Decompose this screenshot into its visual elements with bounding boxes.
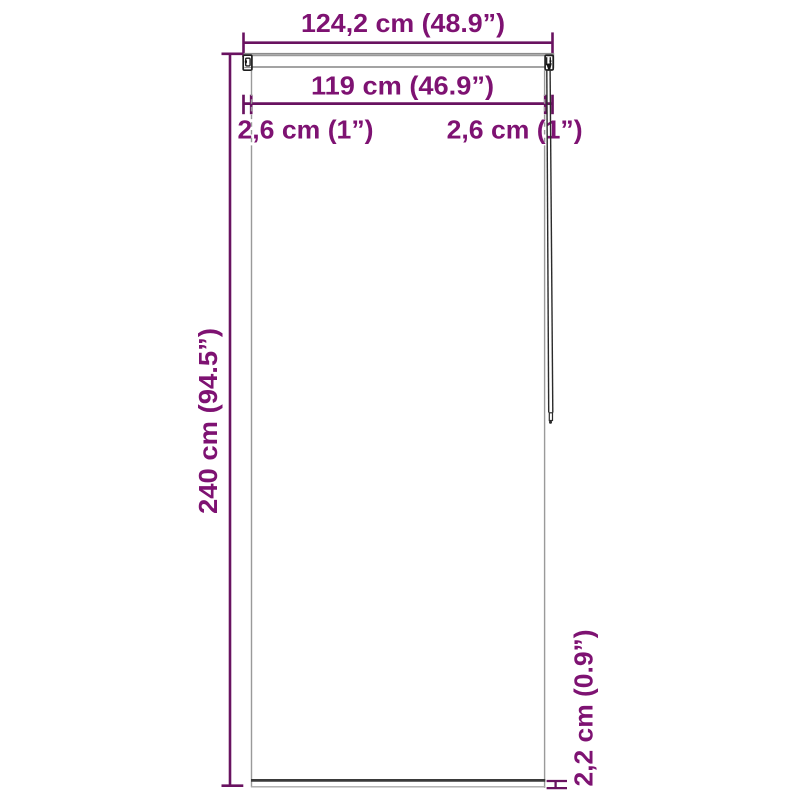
svg-text:2,6 cm (1”): 2,6 cm (1”) <box>238 115 374 145</box>
svg-text:2,6 cm (1”): 2,6 cm (1”) <box>447 115 583 145</box>
svg-text:119 cm (46.9”): 119 cm (46.9”) <box>311 70 494 100</box>
svg-text:240 cm (94.5”): 240 cm (94.5”) <box>193 328 223 514</box>
svg-text:124,2 cm (48.9”): 124,2 cm (48.9”) <box>301 8 505 38</box>
svg-text:2,2 cm (0.9”): 2,2 cm (0.9”) <box>569 630 599 787</box>
